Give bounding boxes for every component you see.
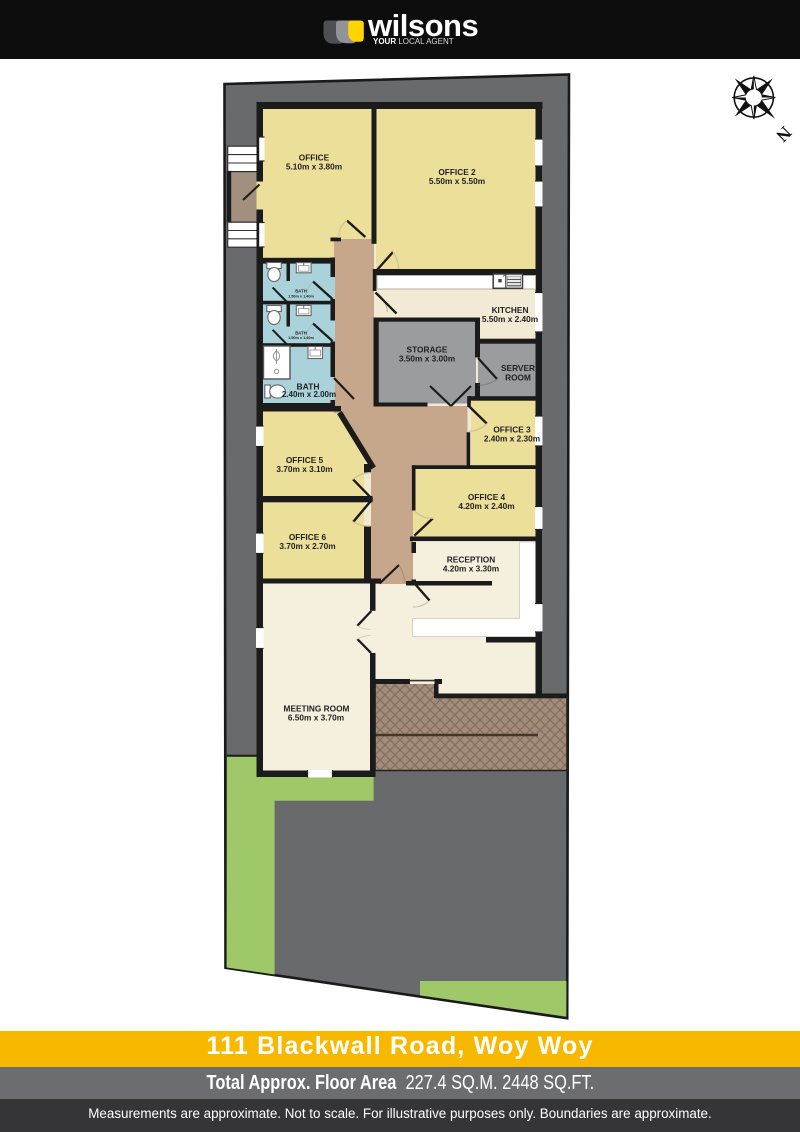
svg-text:3.70m x 2.70m: 3.70m x 2.70m — [279, 541, 335, 551]
svg-text:3.50m x 3.00m: 3.50m x 3.00m — [399, 354, 455, 364]
svg-text:3.70m x 3.10m: 3.70m x 3.10m — [276, 464, 332, 474]
svg-text:1.50m x 1.40m: 1.50m x 1.40m — [288, 294, 314, 298]
svg-text:5.50m x 2.40m: 5.50m x 2.40m — [482, 314, 538, 324]
svg-text:5.50m x 5.50m: 5.50m x 5.50m — [429, 176, 485, 186]
svg-text:ROOM: ROOM — [505, 373, 531, 383]
svg-text:BATH: BATH — [295, 330, 307, 335]
svg-text:4.20m x 3.30m: 4.20m x 3.30m — [443, 564, 499, 574]
svg-text:2.40m x 2.00m: 2.40m x 2.00m — [282, 390, 336, 399]
svg-text:1.50m x 1.40m: 1.50m x 1.40m — [288, 336, 314, 340]
svg-text:N: N — [772, 123, 795, 146]
svg-text:6.50m x 3.70m: 6.50m x 3.70m — [288, 713, 344, 723]
svg-text:2.40m x 2.30m: 2.40m x 2.30m — [484, 434, 540, 444]
svg-text:5.10m x 3.80m: 5.10m x 3.80m — [286, 162, 342, 172]
svg-text:BATH: BATH — [295, 289, 307, 294]
svg-text:4.20m x 2.40m: 4.20m x 2.40m — [458, 501, 514, 511]
